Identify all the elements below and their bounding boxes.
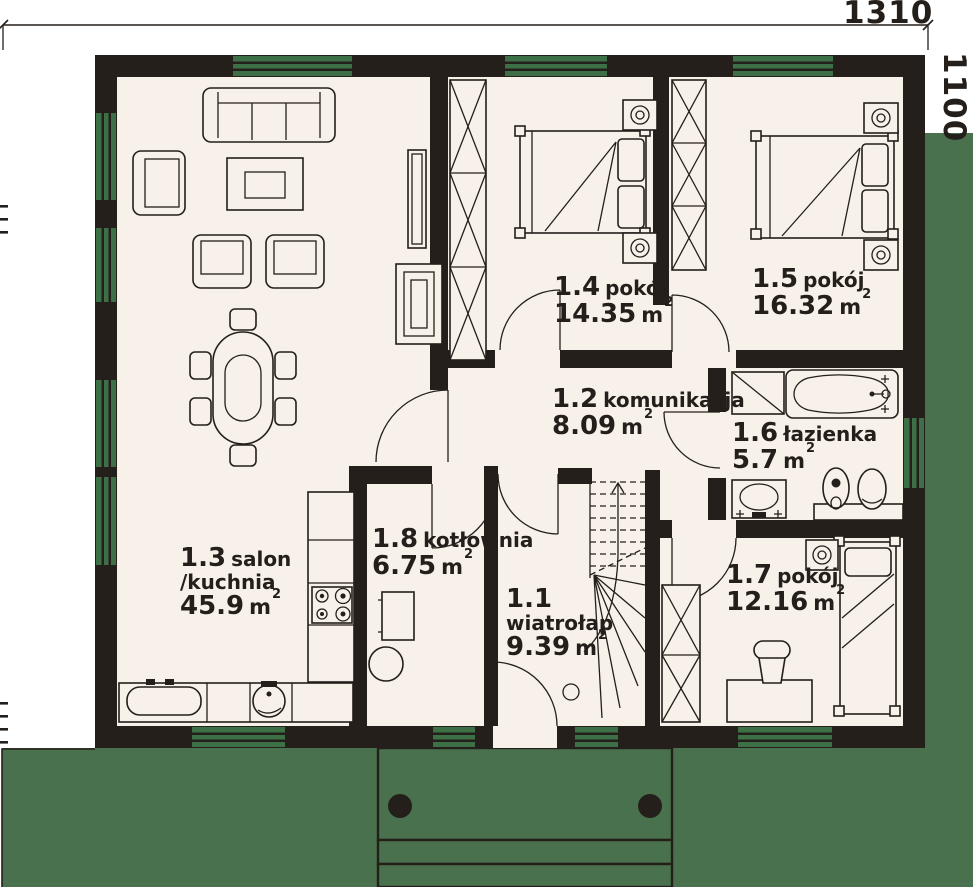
porch-column xyxy=(388,794,412,818)
bidet xyxy=(858,469,886,509)
room-label-1-7: 1.7pokój 12.16m2 xyxy=(726,562,845,616)
tv-cabinet xyxy=(408,150,426,248)
washbasin xyxy=(732,480,786,518)
wardrobe-1-5 xyxy=(672,80,706,270)
sofa xyxy=(203,88,335,142)
kitchen-counter-column xyxy=(308,492,354,682)
nightstand xyxy=(864,103,898,133)
kitchen-sink xyxy=(127,687,201,715)
nightstand xyxy=(623,100,657,130)
fireplace xyxy=(396,264,442,344)
dimension-height-label: 1100 xyxy=(936,52,972,172)
room-label-1-6: 1.6łazienka 5.7m2 xyxy=(732,420,877,474)
dimension-width-label: 1310 xyxy=(843,0,933,31)
wardrobe-1-7 xyxy=(662,585,700,722)
room-label-1-8: 1.8kotłownia 6.75m2 xyxy=(372,526,533,580)
kitchen-counter-bottom xyxy=(119,679,353,722)
toilet xyxy=(823,468,849,509)
wardrobe-1-4 xyxy=(450,80,486,360)
armchair-left xyxy=(133,151,185,215)
nightstand xyxy=(623,233,657,263)
room-label-1-2: 1.2komunikacja 8.09m2 xyxy=(552,386,745,440)
fixture-plinth xyxy=(814,504,903,520)
porch-column xyxy=(638,794,662,818)
boiler xyxy=(382,592,414,640)
entrance-opening xyxy=(493,726,557,748)
room-label-1-1: 1.1 wiatrołap 9.39m2 xyxy=(506,586,613,661)
room-label-1-4: 1.4pokój 14.35m2 xyxy=(554,274,673,328)
entrance-porch xyxy=(378,748,672,887)
room-label-1-3: 1.3salon /kuchnia 45.9m2 xyxy=(180,545,291,620)
room-label-1-5: 1.5pokój 16.32m2 xyxy=(752,266,871,320)
coffee-table xyxy=(227,158,303,210)
floor-plan: 1310 1100 1.1 wiatrołap 9.39m2 1.2komuni… xyxy=(0,0,973,887)
bathtub xyxy=(786,370,898,418)
